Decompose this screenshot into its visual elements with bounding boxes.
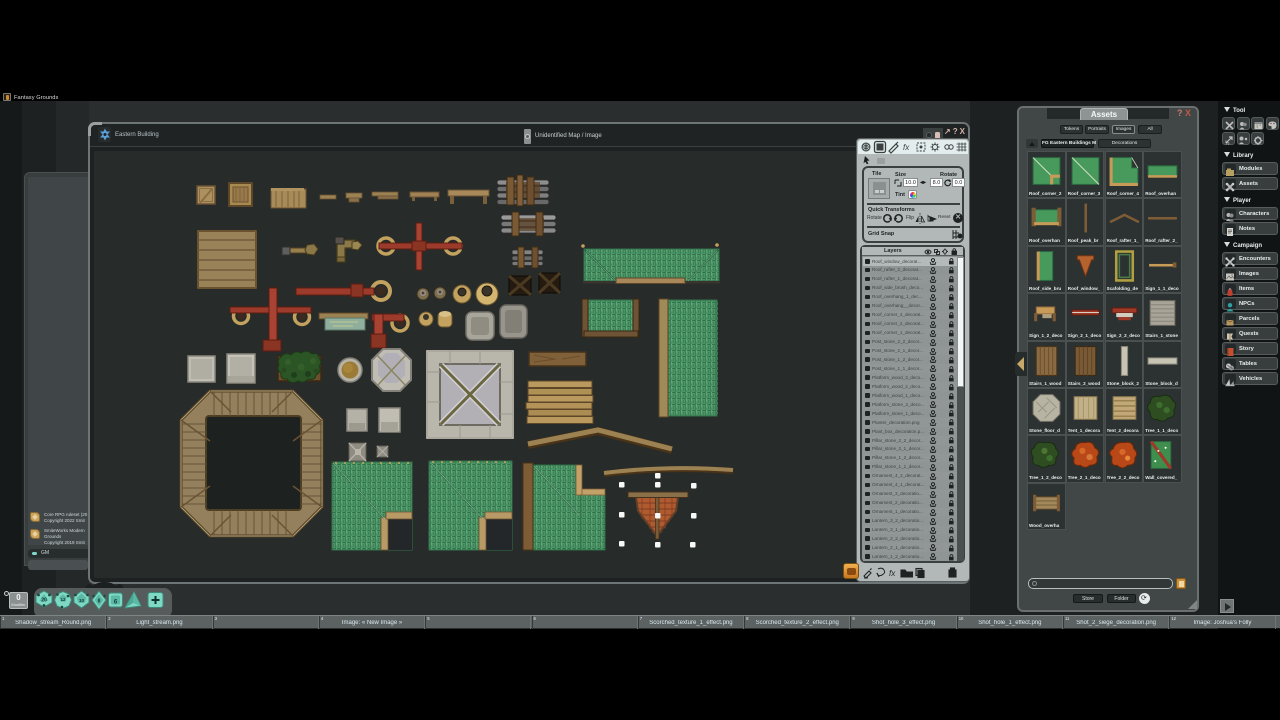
svg-text:8: 8 — [98, 599, 101, 605]
svg-text:12: 12 — [60, 597, 66, 602]
svg-text:fx: fx — [889, 569, 896, 578]
svg-text:20: 20 — [41, 598, 47, 604]
svg-text:%: % — [1225, 140, 1230, 146]
svg-text:10: 10 — [79, 598, 85, 604]
svg-text:fx: fx — [903, 143, 910, 152]
